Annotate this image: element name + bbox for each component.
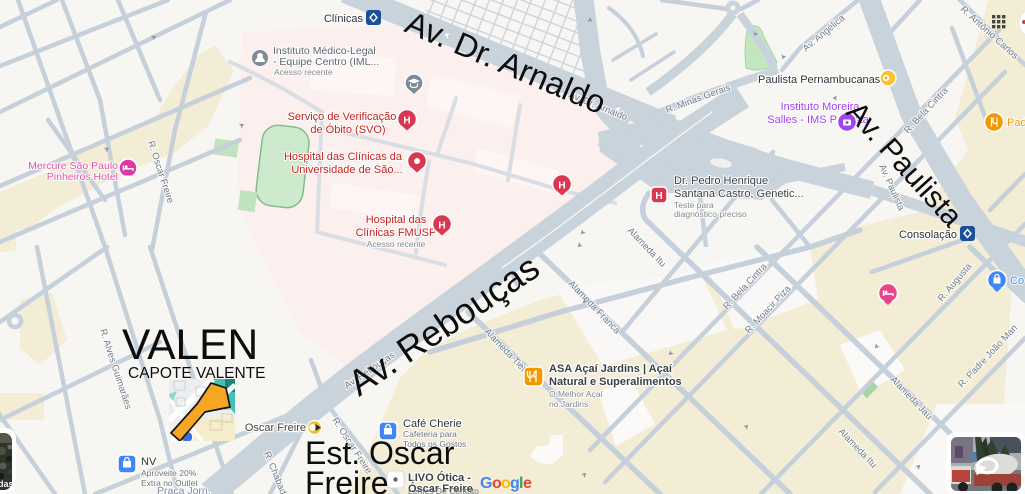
svg-text:Paulista Pernambucanas: Paulista Pernambucanas	[758, 74, 881, 86]
svg-text:Dr. Pedro Henrique: Dr. Pedro Henrique	[674, 175, 768, 187]
svg-text:VALEN: VALEN	[122, 322, 258, 369]
svg-text:G: G	[480, 475, 492, 492]
svg-text:CAPOTE VALENTE: CAPOTE VALENTE	[128, 365, 266, 382]
svg-text:Pinheiros Hotel: Pinheiros Hotel	[47, 171, 118, 183]
svg-text:Acesso recente: Acesso recente	[274, 67, 333, 77]
svg-text:ASA Açaí Jardins | Açaí: ASA Açaí Jardins | Açaí	[549, 363, 673, 375]
svg-text:O Melhor Açaí: O Melhor Açaí	[549, 389, 603, 399]
svg-text:H: H	[558, 181, 565, 192]
svg-text:Lentes De Contato: Lentes De Contato	[408, 486, 479, 494]
svg-text:H: H	[438, 221, 445, 232]
svg-text:diagnóstico preciso: diagnóstico preciso	[674, 209, 747, 219]
svg-text:e: e	[523, 475, 532, 492]
svg-text:Clínicas FMUSP: Clínicas FMUSP	[356, 227, 437, 239]
svg-text:Freire: Freire	[305, 465, 389, 494]
svg-text:Clínicas: Clínicas	[324, 13, 364, 25]
svg-text:Hospital das Clínicas da: Hospital das Clínicas da	[284, 151, 403, 163]
svg-text:H: H	[403, 116, 410, 127]
svg-text:NV: NV	[141, 456, 157, 468]
svg-text:Consolação: Consolação	[899, 229, 957, 241]
svg-text:Hospital das: Hospital das	[366, 214, 427, 226]
svg-text:Santana Castro, Genetic...: Santana Castro, Genetic...	[674, 188, 804, 200]
svg-text:Co: Co	[1010, 275, 1024, 287]
svg-text:Aproveite 20%: Aproveite 20%	[141, 468, 197, 478]
svg-text:Acesso recente: Acesso recente	[367, 239, 426, 249]
svg-text:de Óbito (SVO): de Óbito (SVO)	[310, 123, 385, 136]
svg-text:Praça Jorn.: Praça Jorn.	[157, 485, 211, 494]
svg-text:Serviço de Verificação: Serviço de Verificação	[288, 111, 397, 123]
svg-text:Pad: Pad	[1007, 117, 1025, 129]
svg-text:Universidade de São...: Universidade de São...	[291, 164, 402, 176]
svg-text:Oscar Freire: Oscar Freire	[245, 422, 306, 434]
svg-text:H: H	[655, 191, 662, 202]
svg-text:no Jardins: no Jardins	[549, 399, 588, 409]
svg-text:Natural e Superalimentos: Natural e Superalimentos	[549, 376, 682, 388]
